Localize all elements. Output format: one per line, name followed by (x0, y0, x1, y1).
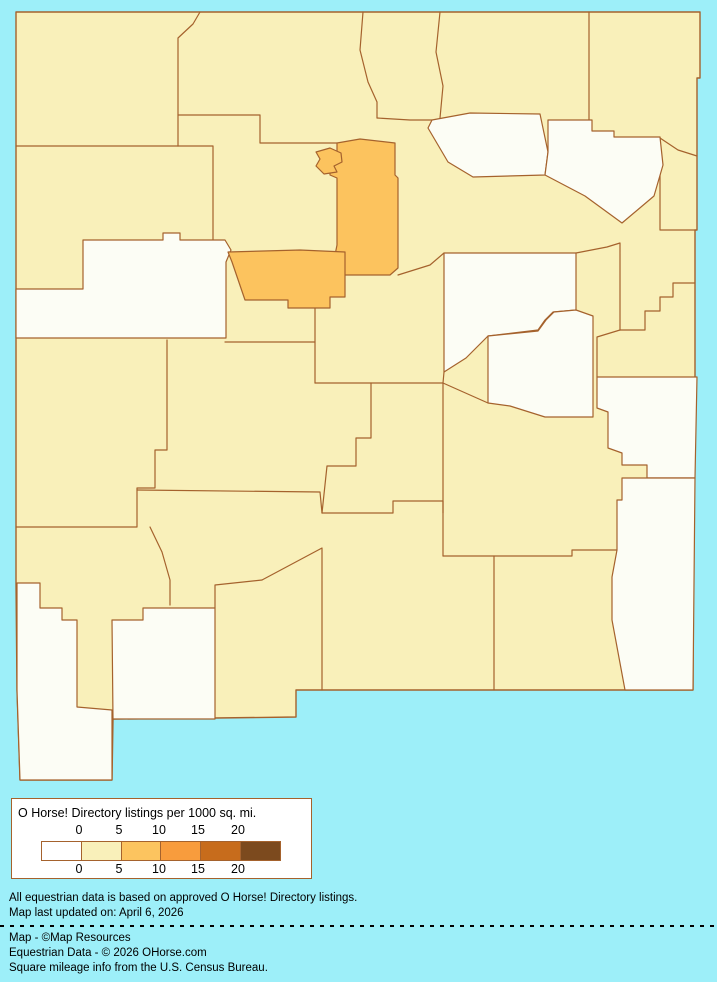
legend-tick: 5 (116, 862, 123, 876)
ramp-swatch-0 (42, 842, 81, 860)
data-source-note: All equestrian data is based on approved… (9, 892, 357, 904)
last-updated-note: Map last updated on: April 6, 2026 (9, 907, 184, 919)
ramp-swatch-1 (81, 842, 121, 860)
legend-tick: 10 (152, 823, 166, 837)
legend-tick: 0 (76, 823, 83, 837)
ramp-swatch-4 (200, 842, 240, 860)
legend-tick: 20 (231, 862, 245, 876)
legend-tick: 15 (191, 823, 205, 837)
census-credit: Square mileage info from the U.S. Census… (9, 962, 268, 974)
ramp-swatch-2 (121, 842, 161, 860)
county-bernalillo (228, 250, 345, 308)
county-lea (612, 478, 695, 690)
legend-tick: 15 (191, 862, 205, 876)
county-luna (112, 608, 215, 719)
legend-tick: 10 (152, 862, 166, 876)
legend-title: O Horse! Directory listings per 1000 sq.… (18, 806, 256, 820)
legend-color-ramp (41, 841, 281, 861)
legend-tick: 0 (76, 862, 83, 876)
legend-tick: 5 (116, 823, 123, 837)
ramp-swatch-3 (160, 842, 200, 860)
legend-tick: 20 (231, 823, 245, 837)
ramp-swatch-5 (240, 842, 280, 860)
map-credit: Map - ©Map Resources (9, 932, 131, 944)
new-mexico-county-map (0, 0, 717, 790)
dashed-separator (0, 925, 717, 927)
data-credit: Equestrian Data - © 2026 OHorse.com (9, 947, 207, 959)
page: { "map": { "state": "New Mexico", "color… (0, 0, 717, 982)
